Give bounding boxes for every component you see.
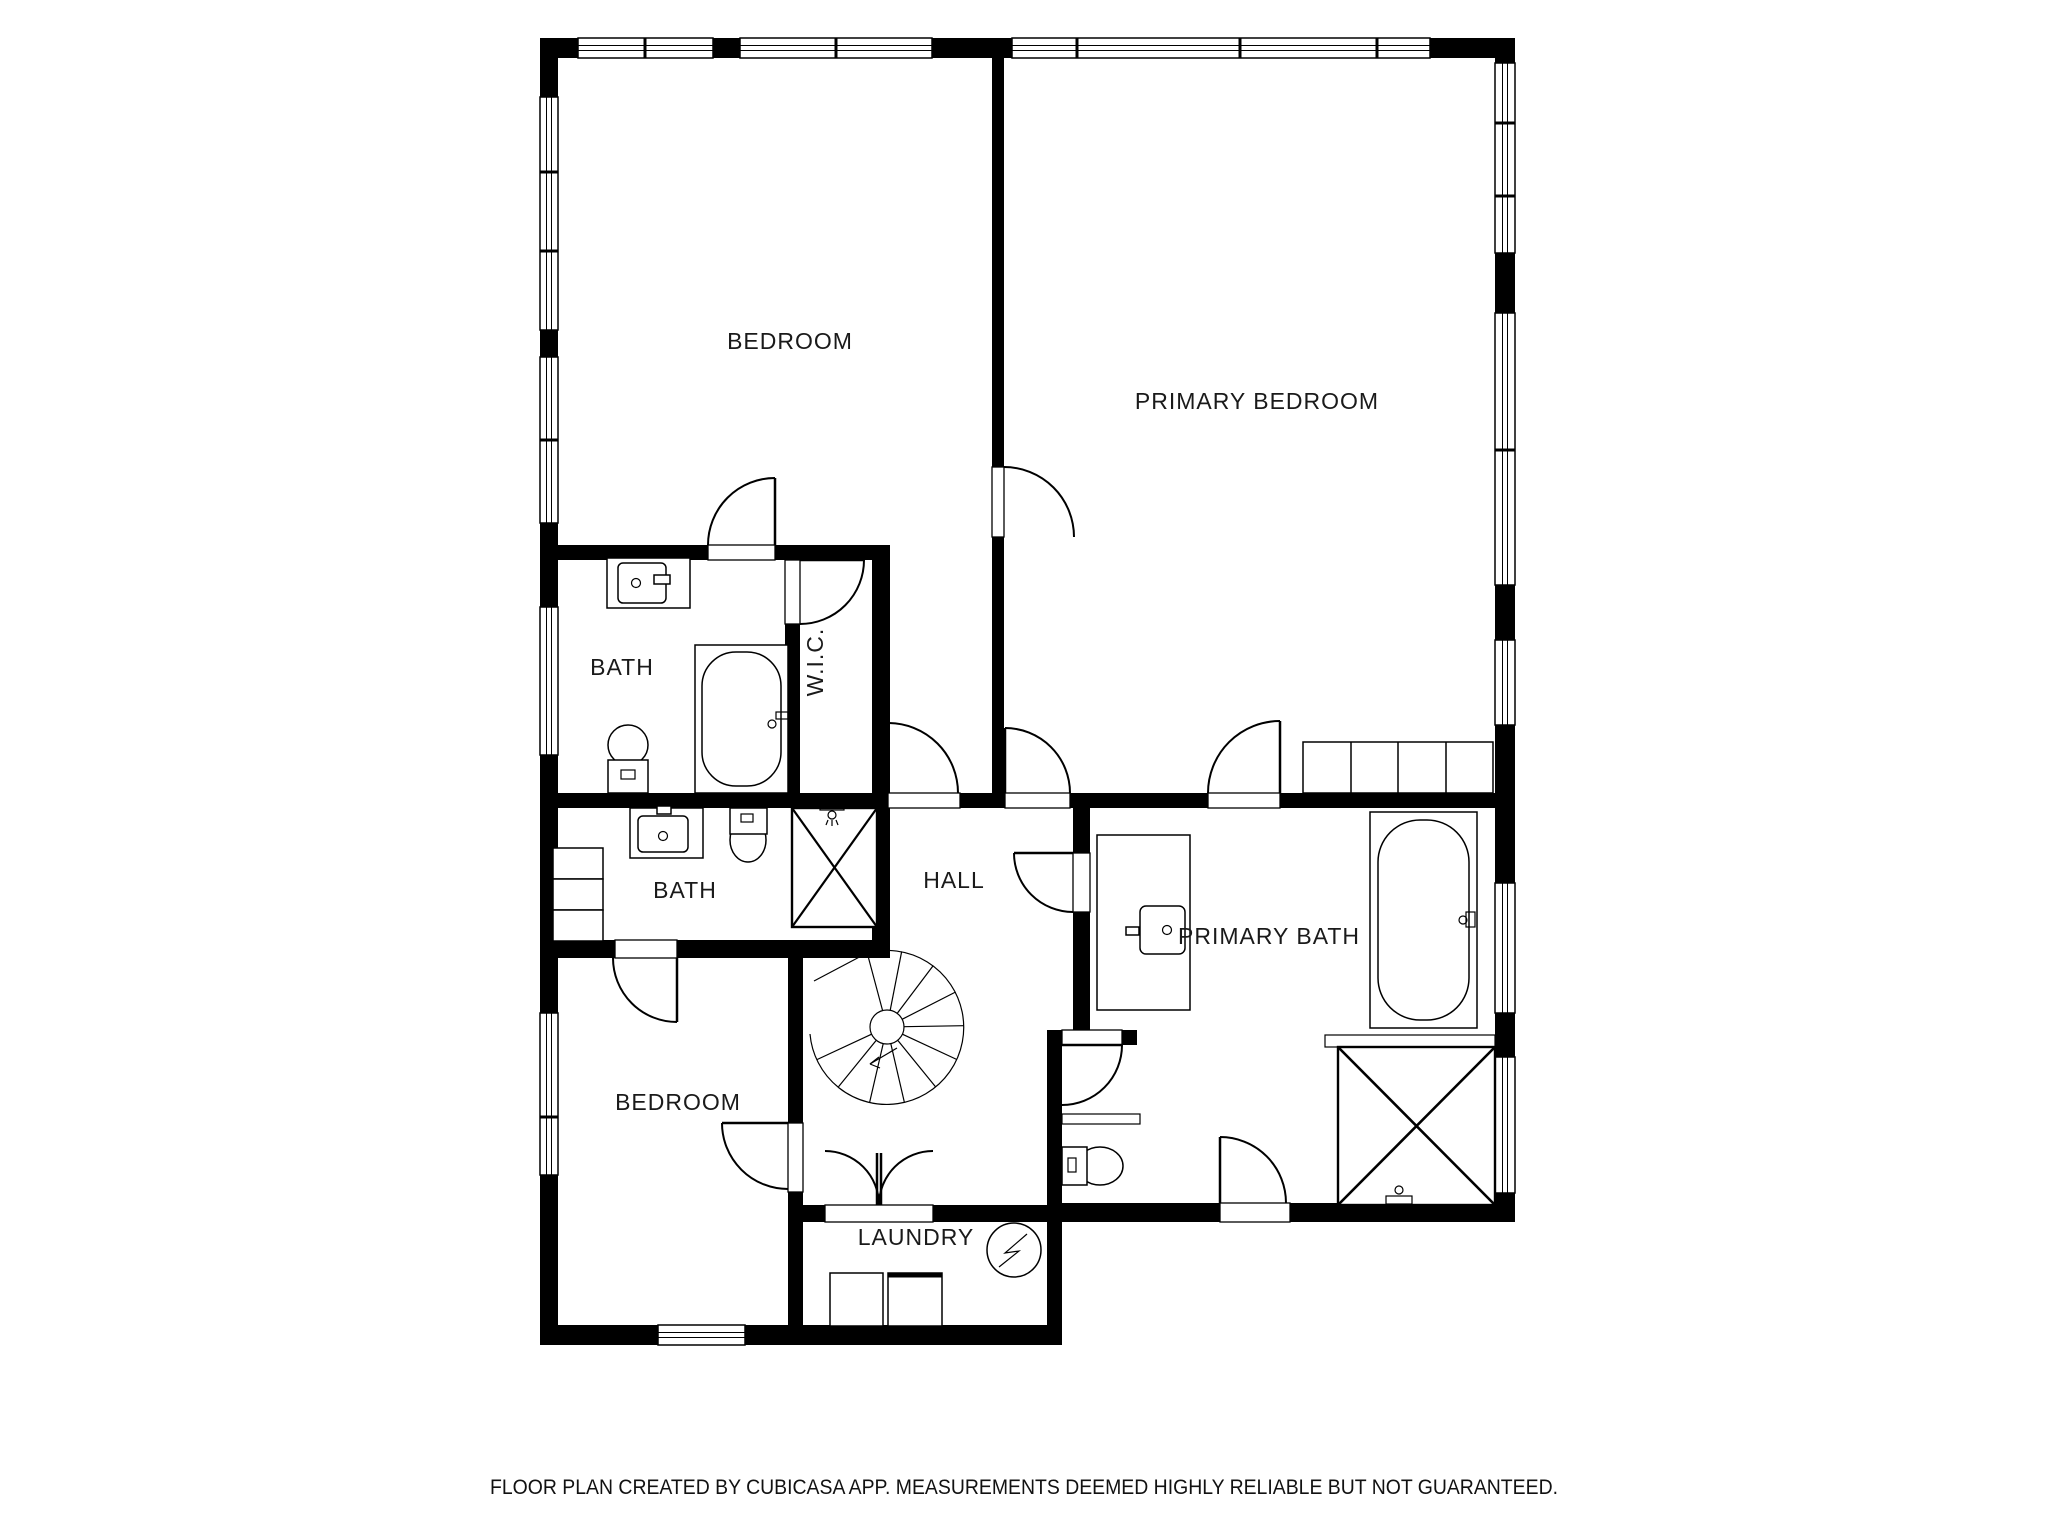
door-opening	[708, 545, 775, 560]
toilet-icon	[608, 725, 648, 793]
door-opening	[992, 467, 1004, 537]
window-icon	[1495, 63, 1515, 253]
wardrobe-icon	[1303, 742, 1493, 793]
door-opening	[1005, 793, 1070, 808]
electrical-panel-icon	[987, 1223, 1041, 1277]
bathtub-icon	[695, 645, 788, 793]
door-opening	[1220, 1203, 1290, 1222]
window-icon	[1495, 313, 1515, 585]
toilet-icon	[730, 808, 767, 862]
shower-icon	[1338, 1047, 1495, 1205]
floor-plan: BEDROOM PRIMARY BEDROOM BATH W.I.C. BATH…	[0, 0, 2048, 1536]
wall	[1073, 808, 1090, 1030]
door-opening	[825, 1205, 933, 1222]
closet-shelves-icon	[553, 848, 603, 941]
window-icon	[658, 1325, 745, 1345]
room-label-bedroom-top: BEDROOM	[727, 328, 853, 354]
window-icon	[540, 607, 558, 755]
room-label-bath-upper: BATH	[590, 654, 654, 680]
window-icon	[540, 357, 558, 523]
room-label-laundry: LAUNDRY	[858, 1224, 975, 1250]
room-label-bedroom-bottom: BEDROOM	[615, 1089, 741, 1115]
door-opening	[1073, 853, 1090, 912]
room-label-primary-bath: PRIMARY BATH	[1178, 923, 1360, 949]
door-opening	[615, 940, 677, 958]
wall	[1047, 1030, 1062, 1222]
dryer-icon	[888, 1273, 942, 1326]
window-icon	[578, 38, 713, 58]
window-icon	[1495, 640, 1515, 725]
room-label-primary-bedroom: PRIMARY BEDROOM	[1135, 388, 1379, 414]
bathtub-icon	[1370, 812, 1477, 1028]
wall	[540, 940, 890, 958]
canvas-background	[0, 0, 2048, 1536]
toilet-icon	[1062, 1147, 1123, 1185]
door-opening	[1208, 793, 1280, 808]
window-icon	[1495, 1057, 1515, 1193]
window-icon	[1012, 38, 1430, 58]
door-opening	[1062, 1030, 1122, 1045]
door-opening	[788, 1123, 803, 1192]
room-label-hall: HALL	[923, 867, 985, 893]
wall	[1047, 1222, 1062, 1332]
door-opening	[888, 793, 960, 808]
wall	[992, 58, 1004, 793]
washer-icon	[830, 1273, 883, 1326]
sink-vanity-icon	[607, 558, 690, 608]
sink-vanity-icon	[1097, 835, 1190, 1010]
window-icon	[540, 97, 558, 330]
room-label-wic: W.I.C.	[802, 628, 828, 697]
footer-disclaimer: FLOOR PLAN CREATED BY CUBICASA APP. MEAS…	[490, 1475, 1558, 1499]
room-label-bath-lower: BATH	[653, 877, 717, 903]
window-icon	[1495, 883, 1515, 1013]
shower-icon	[792, 804, 877, 927]
sink-vanity-icon	[630, 806, 703, 858]
window-icon	[740, 38, 932, 58]
window-icon	[540, 1013, 558, 1175]
door-opening	[785, 560, 800, 624]
